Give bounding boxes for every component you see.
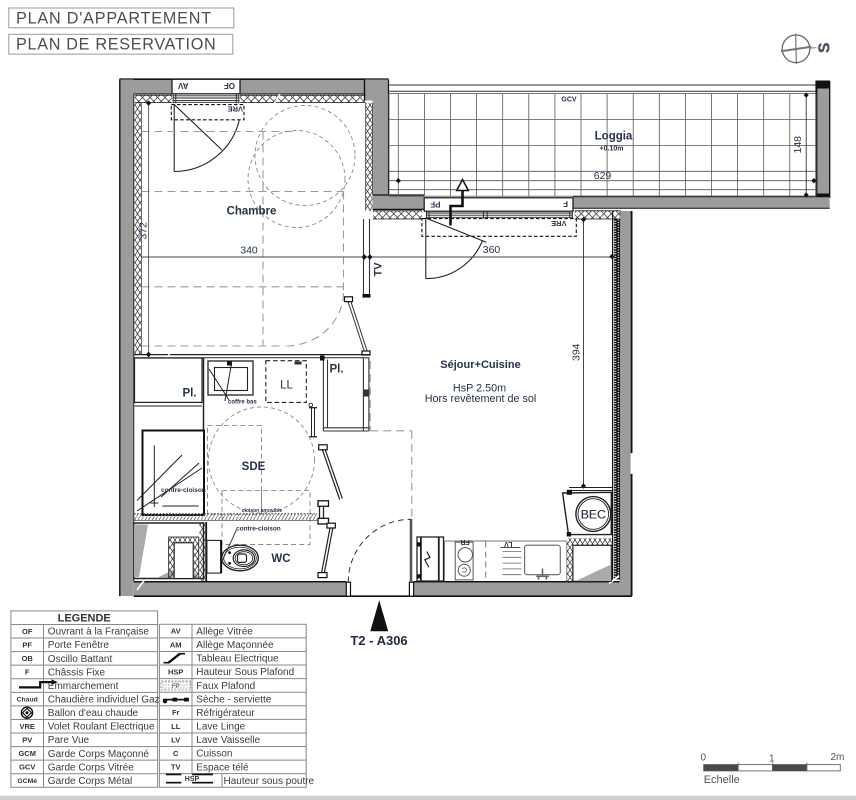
svg-text:PV: PV — [22, 735, 32, 744]
svg-text:OB: OB — [22, 654, 34, 663]
svg-text:148: 148 — [792, 136, 804, 154]
svg-text:Faux Plafond: Faux Plafond — [196, 681, 255, 692]
svg-text:GCM: GCM — [18, 749, 36, 758]
svg-text:LV: LV — [504, 540, 513, 547]
svg-text:TV: TV — [373, 262, 385, 277]
svg-text:Pare Vue: Pare Vue — [48, 735, 90, 746]
svg-text:Réfrigérateur: Réfrigérateur — [196, 708, 255, 719]
svg-text:Echelle: Echelle — [704, 774, 740, 786]
svg-text:LV: LV — [171, 735, 180, 744]
svg-text:Garde Corps Métal: Garde Corps Métal — [48, 776, 132, 787]
svg-text:Lave Vaisselle: Lave Vaisselle — [196, 735, 260, 746]
svg-text:VRE: VRE — [228, 105, 243, 114]
svg-text:F: F — [25, 668, 30, 677]
svg-text:Ouvrant à la Française: Ouvrant à la Française — [48, 627, 150, 638]
svg-text:BEC: BEC — [581, 507, 606, 521]
svg-text:PLAN DE RESERVATION: PLAN DE RESERVATION — [16, 36, 216, 54]
svg-text:340: 340 — [240, 245, 258, 257]
svg-text:Séjour+Cuisine: Séjour+Cuisine — [440, 359, 520, 371]
svg-text:Allège Maçonnée: Allège Maçonnée — [196, 640, 274, 651]
svg-text:394: 394 — [571, 343, 583, 361]
svg-text:cloison amovible: cloison amovible — [242, 508, 283, 514]
svg-text:FR: FR — [460, 538, 469, 545]
svg-text:TV: TV — [171, 763, 181, 772]
svg-text:Garde Corps Vitrée: Garde Corps Vitrée — [48, 762, 134, 773]
svg-text:Fr: Fr — [172, 708, 180, 717]
svg-text:PF: PF — [430, 200, 440, 209]
svg-text:Espace télé: Espace télé — [196, 762, 249, 773]
svg-text:C: C — [462, 565, 467, 572]
svg-text:VRE: VRE — [551, 219, 566, 228]
svg-text:PF: PF — [22, 640, 32, 649]
svg-text:Chaudière individuel Gaz: Chaudière individuel Gaz — [48, 695, 160, 706]
svg-text:Emmarchement: Emmarchement — [48, 681, 119, 692]
svg-text:Allège Vitrée: Allège Vitrée — [196, 627, 253, 638]
svg-text:372: 372 — [138, 222, 150, 240]
svg-text:OF: OF — [224, 81, 235, 90]
svg-text:S: S — [816, 43, 833, 53]
svg-text:Chambre: Chambre — [227, 206, 277, 218]
svg-text:Hauteur Sous Plafond: Hauteur Sous Plafond — [196, 667, 294, 678]
svg-text:Pl.: Pl. — [182, 388, 196, 400]
svg-text:AM: AM — [170, 640, 182, 649]
svg-text:LL: LL — [280, 380, 293, 392]
svg-text:SDE: SDE — [242, 461, 266, 473]
svg-text:VRE: VRE — [19, 722, 34, 731]
svg-text:Sèche - serviette: Sèche - serviette — [196, 694, 271, 705]
svg-text:AV: AV — [177, 81, 188, 90]
svg-text:Porte Fenêtre: Porte Fenêtre — [48, 640, 110, 651]
svg-text:F: F — [563, 199, 568, 208]
svg-text:Ballon d'eau chaude: Ballon d'eau chaude — [48, 708, 139, 719]
svg-text:Hauteur sous poutre: Hauteur sous poutre — [224, 776, 315, 787]
svg-text:Oscillo Battant: Oscillo Battant — [48, 654, 113, 665]
svg-text:Loggia: Loggia — [595, 131, 633, 143]
svg-text:2m: 2m — [831, 752, 845, 763]
svg-text:360: 360 — [483, 244, 501, 256]
svg-text:contre-cloison: contre-cloison — [161, 487, 206, 494]
svg-text:LEGENDE: LEGENDE — [58, 613, 111, 625]
svg-text:LL: LL — [171, 722, 181, 731]
svg-text:Cuisson: Cuisson — [196, 749, 232, 760]
svg-text:+0.10m: +0.10m — [600, 146, 624, 153]
svg-text:Chaud: Chaud — [17, 697, 38, 704]
svg-text:629: 629 — [594, 170, 612, 182]
svg-text:coffre bas: coffre bas — [228, 400, 257, 406]
svg-text:GCV: GCV — [19, 763, 35, 772]
svg-text:C: C — [173, 749, 179, 758]
svg-text:FP: FP — [172, 684, 180, 690]
svg-text:OF: OF — [22, 627, 33, 636]
svg-text:Garde Corps Maçonné: Garde Corps Maçonné — [48, 749, 150, 760]
svg-text:T2 - A306: T2 - A306 — [350, 633, 407, 648]
svg-text:AV: AV — [171, 627, 181, 636]
svg-text:contre-cloison: contre-cloison — [236, 526, 281, 533]
svg-text:Tableau Electrique: Tableau Electrique — [196, 654, 279, 665]
svg-text:GCMé: GCMé — [17, 778, 37, 785]
svg-text:Volet Roulant Electrique: Volet Roulant Electrique — [48, 722, 155, 733]
svg-text:WC: WC — [271, 553, 290, 565]
svg-text:PLAN D'APPARTEMENT: PLAN D'APPARTEMENT — [16, 9, 212, 27]
svg-text:Lave Linge: Lave Linge — [196, 722, 245, 733]
svg-text:HSP: HSP — [185, 776, 200, 783]
svg-text:GCV: GCV — [561, 97, 577, 104]
svg-text:Pl.: Pl. — [330, 364, 344, 376]
svg-text:0: 0 — [701, 753, 707, 764]
svg-text:HSP: HSP — [168, 667, 183, 676]
svg-text:Hors revêtement de sol: Hors revêtement de sol — [425, 393, 537, 405]
svg-text:Châssis Fixe: Châssis Fixe — [48, 667, 106, 678]
